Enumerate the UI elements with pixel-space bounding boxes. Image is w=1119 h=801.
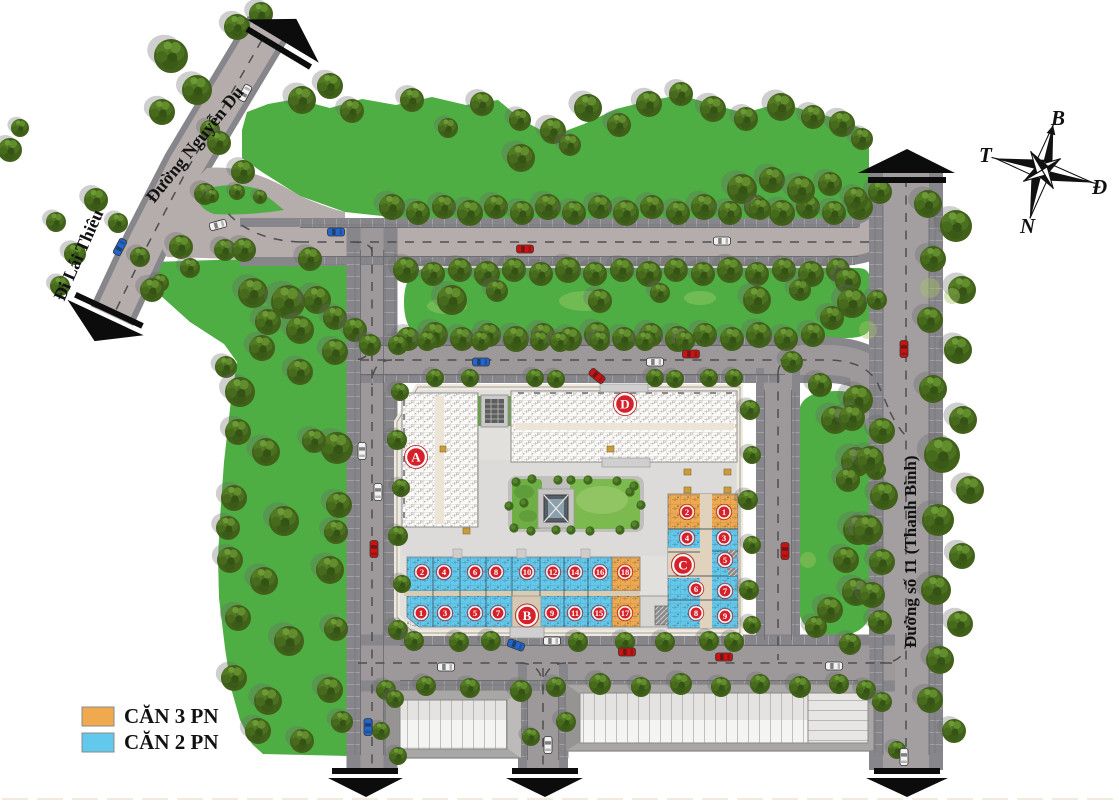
svg-text:2: 2 bbox=[420, 567, 424, 577]
svg-text:1: 1 bbox=[722, 507, 726, 517]
svg-text:7: 7 bbox=[723, 586, 728, 596]
svg-text:12: 12 bbox=[549, 567, 558, 577]
svg-text:9: 9 bbox=[723, 611, 727, 621]
svg-text:A: A bbox=[411, 450, 421, 465]
svg-text:5: 5 bbox=[473, 608, 477, 618]
svg-text:6: 6 bbox=[473, 567, 478, 577]
svg-text:17: 17 bbox=[621, 608, 630, 618]
svg-text:4: 4 bbox=[442, 567, 447, 577]
svg-text:9: 9 bbox=[550, 608, 554, 618]
svg-text:2: 2 bbox=[685, 507, 689, 517]
svg-text:7: 7 bbox=[496, 608, 501, 618]
svg-text:8: 8 bbox=[694, 608, 699, 618]
svg-text:3: 3 bbox=[443, 608, 447, 618]
svg-text:1: 1 bbox=[419, 608, 423, 618]
svg-text:11: 11 bbox=[571, 608, 579, 618]
svg-text:5: 5 bbox=[723, 555, 727, 565]
svg-text:10: 10 bbox=[523, 567, 532, 577]
svg-text:4: 4 bbox=[685, 533, 690, 543]
svg-text:6: 6 bbox=[694, 584, 699, 594]
svg-text:CĂN 3 PN: CĂN 3 PN bbox=[124, 704, 219, 728]
svg-text:15: 15 bbox=[595, 608, 604, 618]
svg-text:CĂN 2 PN: CĂN 2 PN bbox=[124, 730, 219, 754]
svg-text:B: B bbox=[523, 608, 532, 623]
svg-text:T: T bbox=[979, 143, 993, 167]
svg-text:14: 14 bbox=[571, 567, 580, 577]
svg-text:N: N bbox=[1019, 214, 1036, 238]
svg-text:8: 8 bbox=[494, 567, 499, 577]
svg-text:16: 16 bbox=[596, 567, 605, 577]
svg-text:B: B bbox=[1050, 106, 1065, 130]
svg-text:D: D bbox=[620, 397, 629, 412]
svg-text:Đ: Đ bbox=[1091, 175, 1107, 199]
svg-text:18: 18 bbox=[621, 567, 630, 577]
svg-text:3: 3 bbox=[722, 533, 726, 543]
svg-text:Đường số 11 (Thanh Bình): Đường số 11 (Thanh Bình) bbox=[901, 455, 920, 648]
svg-text:C: C bbox=[678, 558, 687, 573]
